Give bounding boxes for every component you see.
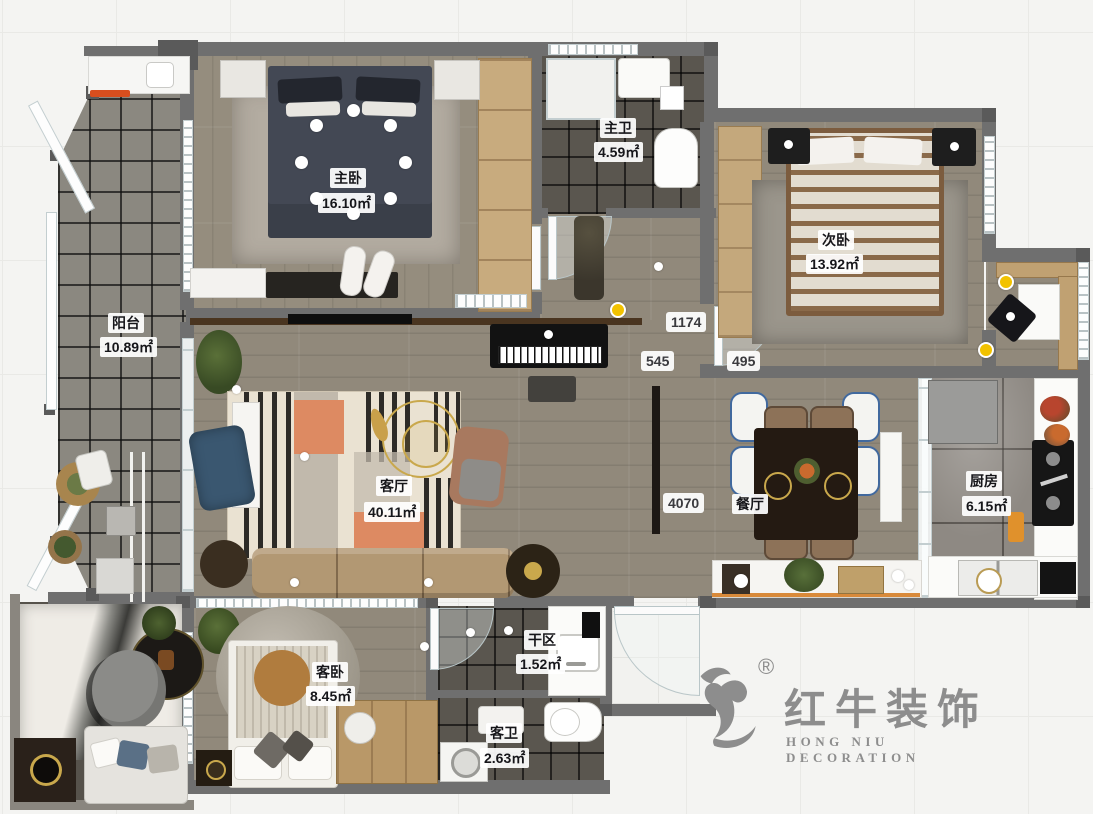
sideboard-wood-box xyxy=(838,566,884,594)
kitchen-veg-decor xyxy=(1040,396,1070,422)
balcony-side-table xyxy=(106,506,136,536)
post-corner xyxy=(704,42,718,56)
ceiling-light xyxy=(290,578,299,587)
black-screen-partition xyxy=(652,386,660,534)
entry-door-leaf xyxy=(614,606,700,615)
brand-name-cn: 红牛装饰 xyxy=(784,676,988,737)
room-label-guest-bath: 客卫 xyxy=(486,723,522,743)
room-label-guest-bedroom: 客卧 xyxy=(312,662,348,682)
dimension-label-4070: 4070 xyxy=(663,493,704,513)
master-bed-pillow xyxy=(355,76,420,103)
toilet-master xyxy=(654,128,698,188)
corridor-feature-plants xyxy=(574,216,604,300)
wall-nook-top xyxy=(982,248,1090,262)
chandelier-bulb xyxy=(384,119,397,132)
room-area-guest-bath: 2.63㎡ xyxy=(480,748,529,768)
dimension-label-495: 495 xyxy=(727,351,760,371)
master-nightstand-right xyxy=(434,60,480,100)
room-area-second-bedroom: 13.92㎡ xyxy=(806,254,863,274)
room-label-master-bedroom: 主卧 xyxy=(330,168,366,188)
guest-ceiling-light xyxy=(420,642,429,651)
dry-area-light xyxy=(504,626,513,635)
room-label-dry-area: 干区 xyxy=(524,630,560,650)
study-plant xyxy=(142,606,176,640)
chandelier-bulb xyxy=(399,156,412,169)
dimension-label-545: 545 xyxy=(641,351,674,371)
sofa xyxy=(252,548,514,598)
chandelier-bulb xyxy=(384,192,397,205)
dining-column-white xyxy=(880,432,902,522)
sideboard-plant xyxy=(784,558,824,592)
master-bath-door-leaf xyxy=(548,216,557,280)
tv xyxy=(288,314,412,324)
study-pillow-blue xyxy=(116,740,150,771)
wall-top-main xyxy=(186,42,718,56)
nook-chair-dot xyxy=(1006,312,1015,321)
post-corner xyxy=(600,704,612,716)
brand-name-en: HONG NIU DECORATION xyxy=(786,734,1002,766)
guest-gold-bowl xyxy=(206,760,226,780)
chandelier-bulb xyxy=(310,119,323,132)
nook-right-window xyxy=(1078,262,1089,360)
second-bed-pillow xyxy=(863,137,922,166)
guest-chair xyxy=(344,712,376,744)
brand-logo: ® 红牛装饰 HONG NIU DECORATION xyxy=(692,652,1002,764)
master-bed-pillow-white xyxy=(362,101,416,117)
post-corner xyxy=(1076,596,1090,608)
kitchen-sink-round xyxy=(976,568,1002,594)
living-bottom-window xyxy=(196,598,418,608)
piano-keys xyxy=(498,346,602,364)
dining-tray-ring xyxy=(824,472,852,500)
bath-vent xyxy=(660,86,684,110)
master-bed-pillow xyxy=(277,76,342,103)
ceiling-light xyxy=(232,385,241,394)
sofa-side-table xyxy=(200,540,248,588)
room-label-kitchen: 厨房 xyxy=(966,471,1002,491)
dining-centerpiece xyxy=(794,458,820,484)
room-label-second-bedroom: 次卧 xyxy=(818,230,854,250)
spot-light-yellow xyxy=(610,302,626,318)
room-label-living: 客厅 xyxy=(376,476,412,496)
kitchen-orange-bottle xyxy=(1008,512,1024,542)
room-area-living: 40.11㎡ xyxy=(364,502,420,522)
kitchen-dark-cabinet xyxy=(1040,562,1076,594)
room-area-dry-area: 1.52㎡ xyxy=(516,654,565,674)
wall-second-bedroom-top xyxy=(704,108,996,122)
ceiling-light xyxy=(424,578,433,587)
spot-light-yellow xyxy=(998,274,1014,290)
kitchen-veg-decor xyxy=(1044,424,1070,446)
washing-machine-door xyxy=(451,748,481,778)
study-gray-chair xyxy=(92,650,166,730)
room-label-dining: 餐厅 xyxy=(732,494,768,514)
sideboard-plate xyxy=(734,574,748,588)
dry-area-faucet xyxy=(566,662,586,666)
room-area-kitchen: 6.15㎡ xyxy=(962,496,1011,516)
nook-shelf-right xyxy=(1058,276,1078,370)
registered-mark: ® xyxy=(758,654,774,680)
sideboard-dish xyxy=(904,580,914,590)
laundry-counter xyxy=(88,56,190,94)
ceiling-light xyxy=(300,452,309,461)
study-pillow-gray xyxy=(146,744,179,774)
bath-top-window xyxy=(548,44,638,55)
bedroom-radiator xyxy=(455,294,527,308)
balcony-plant-small xyxy=(48,530,82,564)
dry-area-light xyxy=(466,628,475,637)
decor-gold-ring xyxy=(402,420,450,468)
cooktop-burner xyxy=(1046,452,1060,466)
dry-area-black-box xyxy=(582,612,600,638)
room-label-master-bath: 主卫 xyxy=(600,118,636,138)
master-dresser-board xyxy=(190,268,266,298)
laundry-sink xyxy=(146,62,174,88)
balcony-mat xyxy=(96,558,134,594)
master-wardrobe xyxy=(478,58,532,312)
wall-bath-bottom-stub xyxy=(540,208,548,218)
chandelier-bulb xyxy=(347,104,360,117)
shower-area xyxy=(546,58,616,120)
room-area-balcony: 10.89㎡ xyxy=(100,337,157,357)
dimension-label-1174: 1174 xyxy=(666,312,706,332)
nightstand-lamp xyxy=(950,142,959,151)
room-label-balcony: 阳台 xyxy=(108,313,144,333)
room-area-master-bedroom: 16.10㎡ xyxy=(318,193,375,213)
gold-bowl xyxy=(524,562,542,580)
second-bedroom-right-window xyxy=(984,136,995,234)
ceiling-light xyxy=(654,262,663,271)
balcony-bedroom-window xyxy=(183,120,193,292)
armchair-blanket xyxy=(458,458,502,502)
wall-bath-bottom-east xyxy=(606,208,716,218)
room-area-guest-bedroom: 8.45㎡ xyxy=(306,686,355,706)
laundry-orange-mat xyxy=(90,90,130,97)
toilet-guest-bowl xyxy=(550,708,580,736)
sideboard-dish xyxy=(892,570,904,582)
guest-room-door-leaf xyxy=(430,608,439,670)
guest-bed-brown-circle xyxy=(254,650,310,706)
master-nightstand-left xyxy=(220,60,266,98)
dining-tray-ring xyxy=(764,472,792,500)
post-corner xyxy=(982,108,996,122)
rug-orange-patch xyxy=(294,400,344,454)
bay-window-middle xyxy=(46,212,57,410)
nightstand-lamp xyxy=(784,140,793,149)
cooktop-burner xyxy=(1046,496,1060,510)
master-bed-pillow-white xyxy=(286,101,340,117)
spot-light-yellow xyxy=(978,342,994,358)
room-area-master-bath: 4.59㎡ xyxy=(594,142,643,162)
study-table-decor xyxy=(158,650,174,670)
fridge xyxy=(928,380,998,444)
drying-rack xyxy=(142,452,145,602)
piano-bench xyxy=(528,376,576,402)
piano-dot xyxy=(544,330,553,339)
floor-plan-canvas: 主卧 16.10㎡ 主卫 4.59㎡ 次卧 13.92㎡ 阳台 10.89㎡ 客… xyxy=(0,0,1093,814)
study-black-bowl xyxy=(30,754,62,786)
post-corner xyxy=(1076,248,1090,262)
chandelier-bulb xyxy=(295,156,308,169)
